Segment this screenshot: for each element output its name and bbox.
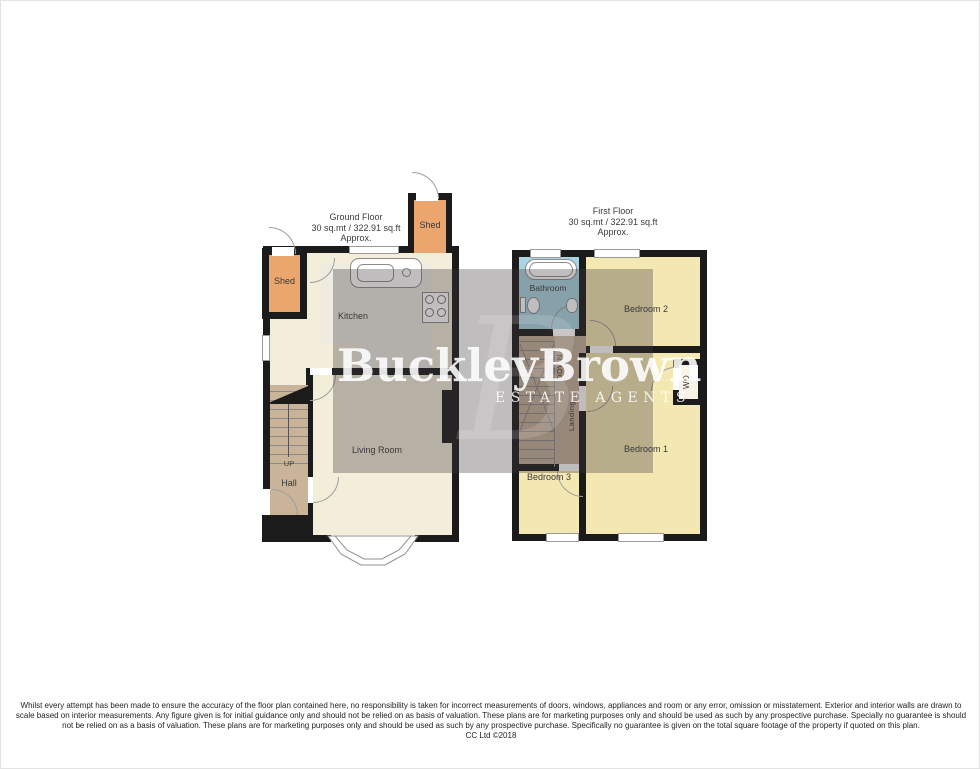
- disclaimer-line: not be relied on as a basis of valuation…: [9, 721, 973, 731]
- first-floor-area: 30 sq.mt / 322.91 sq.ft: [556, 217, 670, 228]
- disclaimer-line: scale based on interior measurements. An…: [9, 711, 973, 721]
- window: [618, 533, 664, 542]
- ground-floor-area: 30 sq.mt / 322.91 sq.ft: [299, 223, 413, 234]
- stairs-arrow-head: [284, 395, 294, 403]
- shed-top-label: Shed: [408, 220, 452, 230]
- window: [349, 246, 399, 254]
- stairs-arrow-line: [288, 401, 289, 457]
- door-opening: [263, 489, 270, 515]
- disclaimer-credit: CC Ltd ©2018: [9, 731, 973, 741]
- watermark-brand: BuckleyBrown: [337, 342, 647, 390]
- ground-floor-title: Ground Floor: [299, 212, 413, 223]
- first-floor-title-block: First Floor 30 sq.mt / 322.91 sq.ft Appr…: [556, 206, 670, 238]
- window: [262, 335, 270, 361]
- first-floor-title: First Floor: [556, 206, 670, 217]
- watermark-tagline: ESTATE AGENTS: [495, 390, 645, 406]
- stairs-up-label: UP: [278, 459, 300, 468]
- shed-left-label: Shed: [262, 276, 307, 286]
- ground-floor-title-block: Ground Floor 30 sq.mt / 322.91 sq.ft App…: [299, 212, 413, 244]
- exterior-wall: [262, 515, 311, 542]
- window: [546, 533, 579, 542]
- door-arc: [269, 227, 296, 254]
- disclaimer-block: Whilst every attempt has been made to en…: [9, 701, 973, 741]
- window: [530, 249, 561, 258]
- door-opening: [310, 368, 332, 375]
- hall-label: Hall: [268, 478, 310, 488]
- bay-opening: [331, 535, 415, 542]
- window: [594, 249, 640, 258]
- door-arc: [412, 172, 439, 199]
- disclaimer-line: Whilst every attempt has been made to en…: [9, 701, 973, 711]
- ground-floor-approx: Approx.: [299, 233, 413, 244]
- first-floor-approx: Approx.: [556, 227, 670, 238]
- floorplan-page: Ground Floor 30 sq.mt / 322.91 sq.ft App…: [0, 0, 980, 769]
